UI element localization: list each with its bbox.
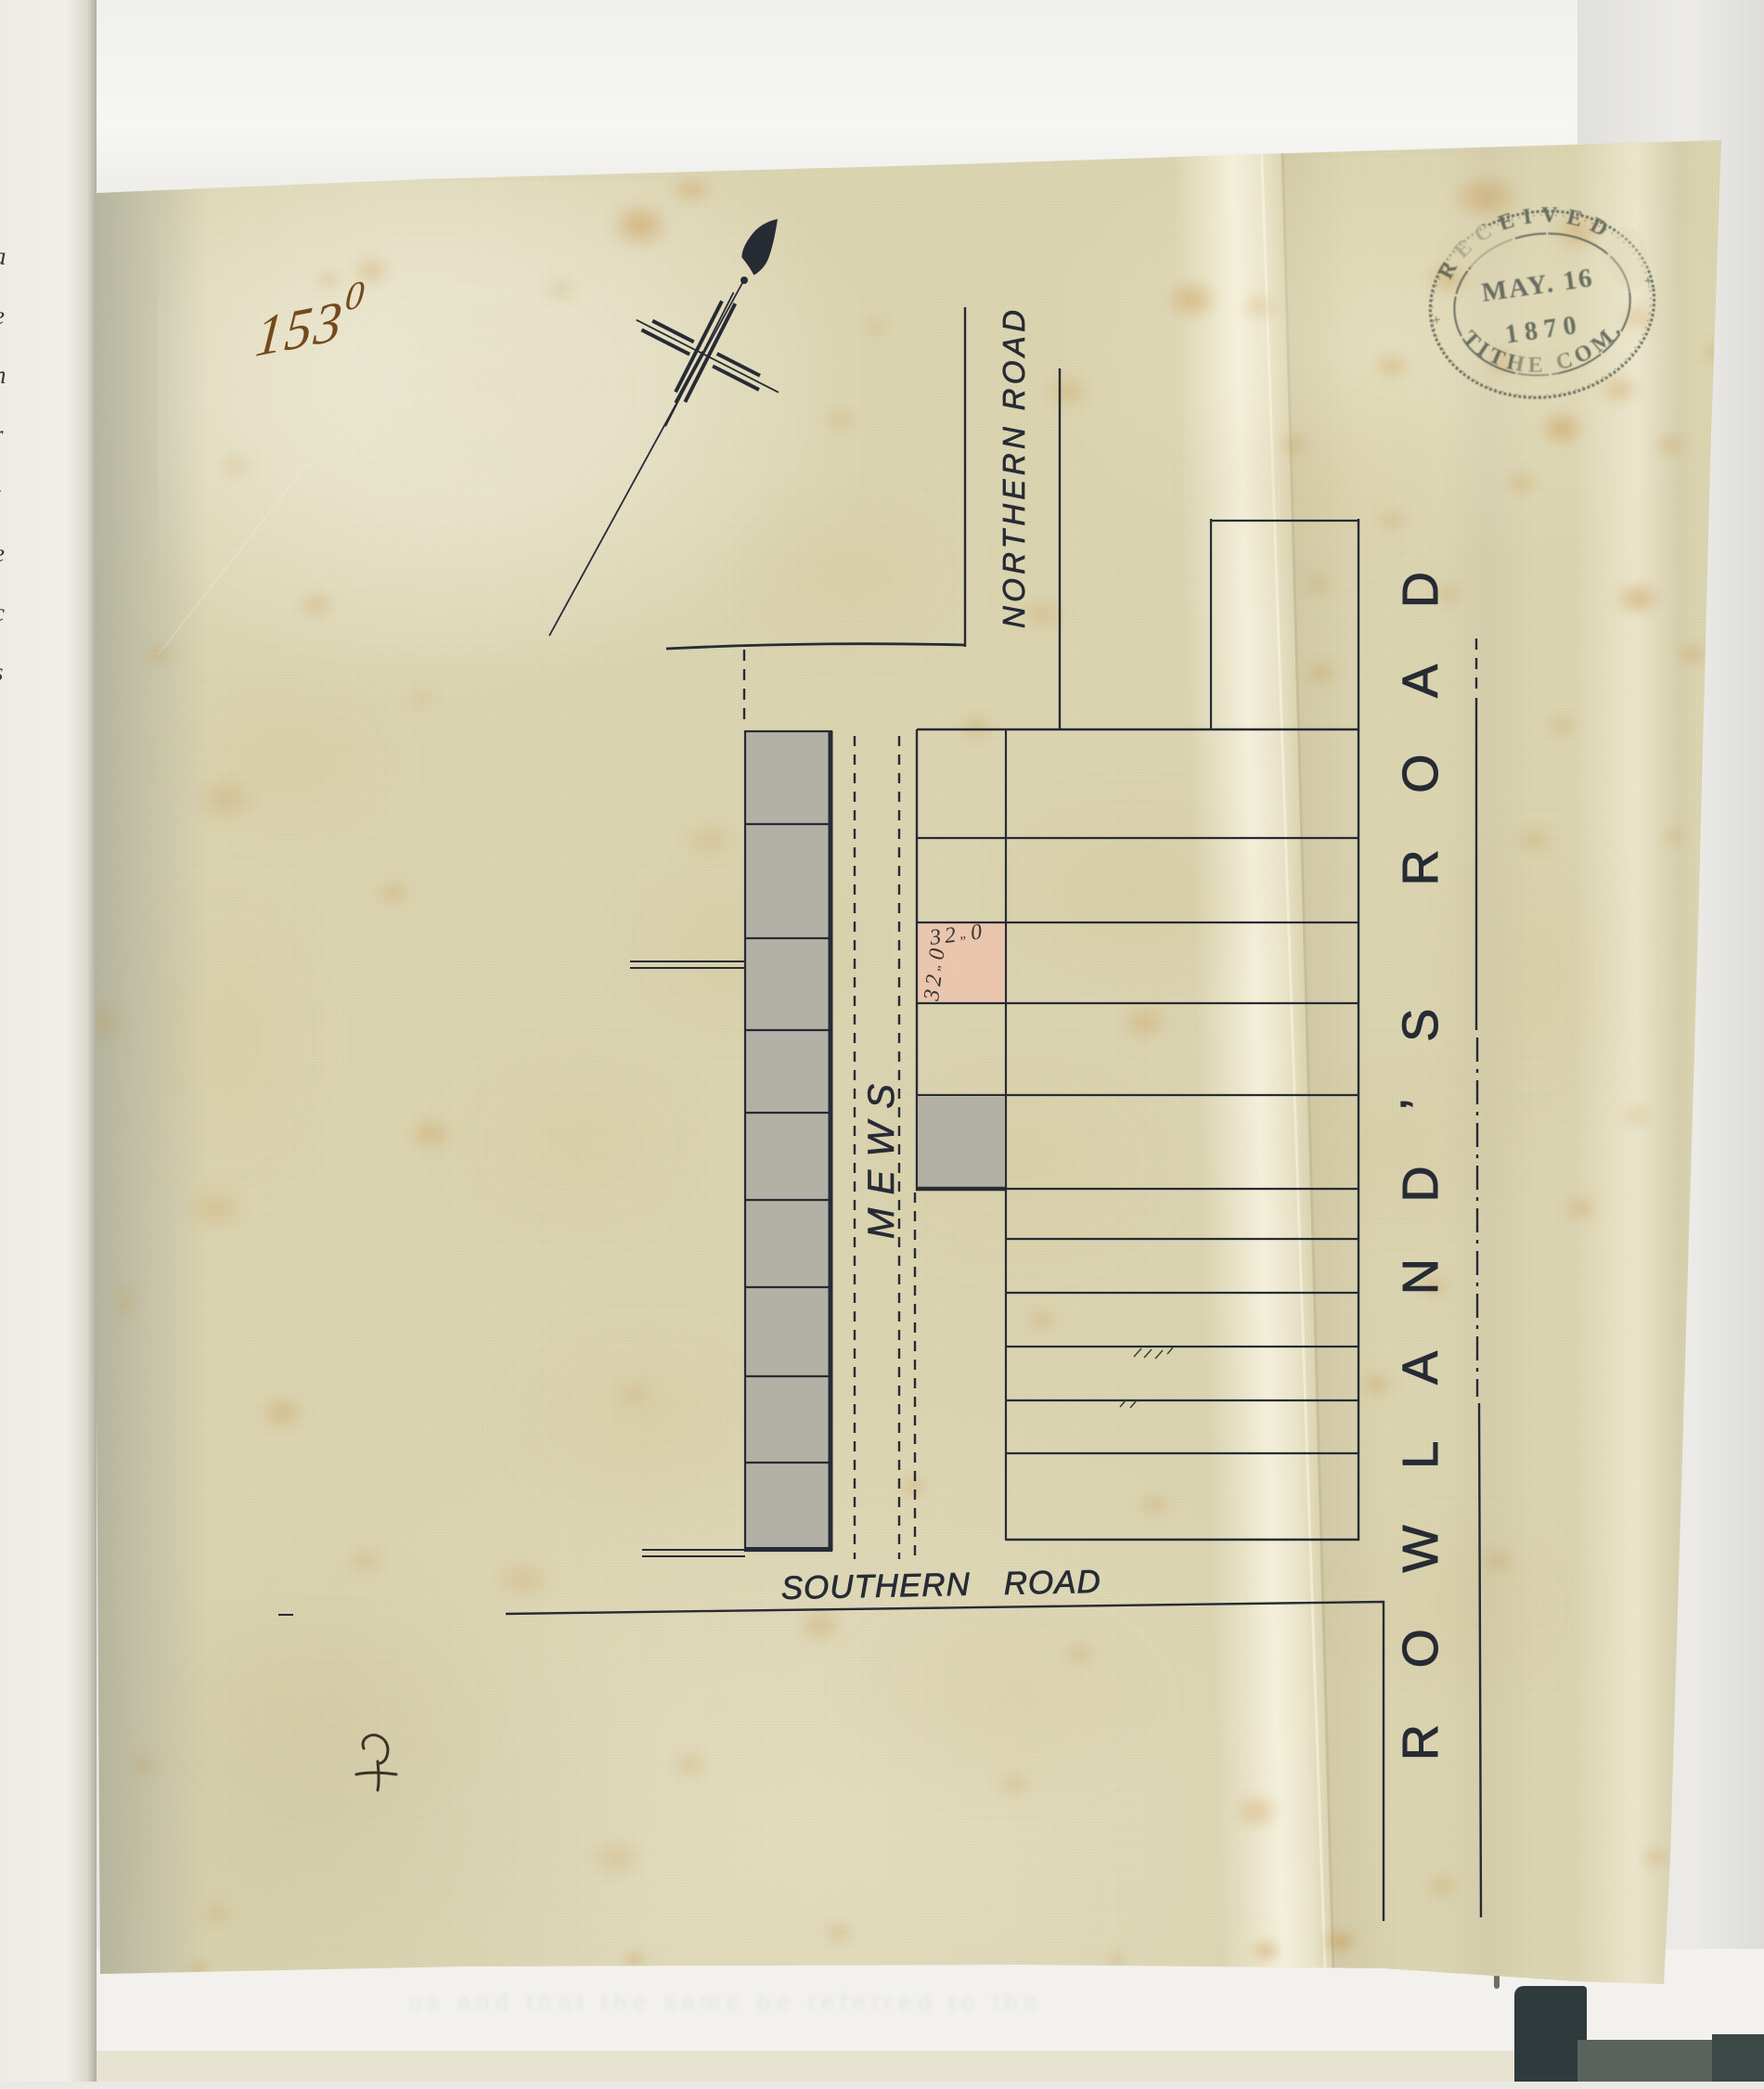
- svg-text:SOUTHERN ROAD: SOUTHERN ROAD: [780, 1564, 1102, 1606]
- svg-text:+: +: [1431, 310, 1442, 329]
- svg-text:1530: 1530: [253, 273, 367, 369]
- svg-text:NORTHERN ROAD: NORTHERN ROAD: [997, 305, 1031, 628]
- svg-text:ROWLANDʼS ROAD: ROWLANDʼS ROAD: [1393, 523, 1449, 1760]
- svg-text:MAY. 16: MAY. 16: [1480, 263, 1596, 308]
- svg-text:MEWS: MEWS: [861, 1071, 902, 1239]
- svg-text:1870: 1870: [1503, 310, 1584, 349]
